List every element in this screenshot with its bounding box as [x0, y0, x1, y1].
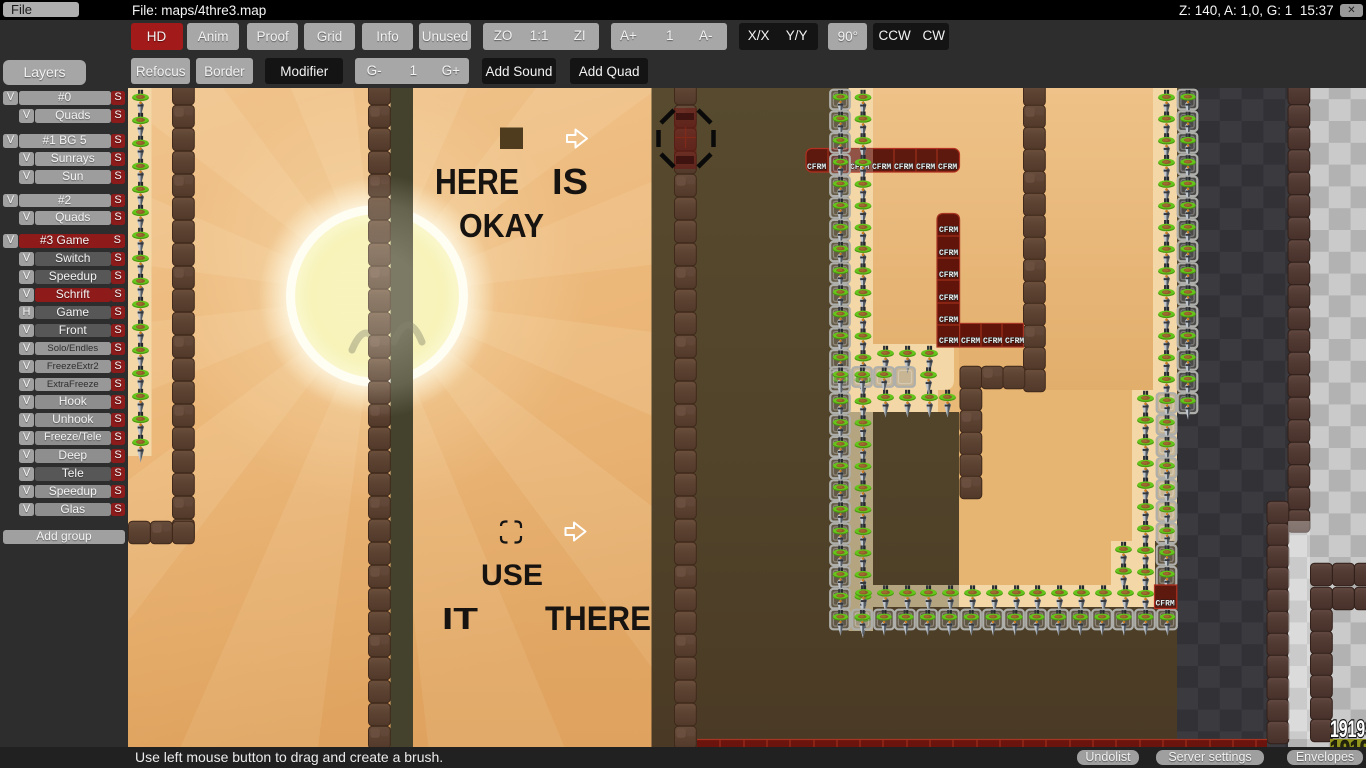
svg-text:1919: 1919	[1330, 736, 1366, 747]
svg-text:OKAY: OKAY	[459, 207, 544, 244]
svg-text:CFRM: CFRM	[938, 163, 957, 172]
svg-text:CFRM: CFRM	[1156, 600, 1175, 609]
svg-text:IS: IS	[552, 161, 588, 202]
svg-text:CFRM: CFRM	[894, 163, 913, 172]
svg-text:CFRM: CFRM	[916, 163, 935, 172]
svg-text:CFRM: CFRM	[939, 316, 958, 325]
svg-text:USE: USE	[481, 559, 543, 592]
svg-text:CFRM: CFRM	[872, 163, 891, 172]
svg-text:CFRM: CFRM	[939, 294, 958, 303]
svg-text:CFRM: CFRM	[983, 337, 1002, 346]
svg-text:IT: IT	[442, 601, 478, 636]
svg-text:CFRM: CFRM	[1005, 337, 1024, 346]
svg-text:CFRM: CFRM	[939, 337, 958, 346]
svg-text:CFRM: CFRM	[939, 226, 958, 235]
svg-text:THERE: THERE	[545, 600, 651, 638]
svg-text:CFRM: CFRM	[939, 249, 958, 258]
svg-text:HERE: HERE	[435, 161, 519, 202]
svg-text:CFRM: CFRM	[939, 271, 958, 280]
svg-text:CFRM: CFRM	[961, 337, 980, 346]
svg-text:CFRM: CFRM	[807, 163, 826, 172]
